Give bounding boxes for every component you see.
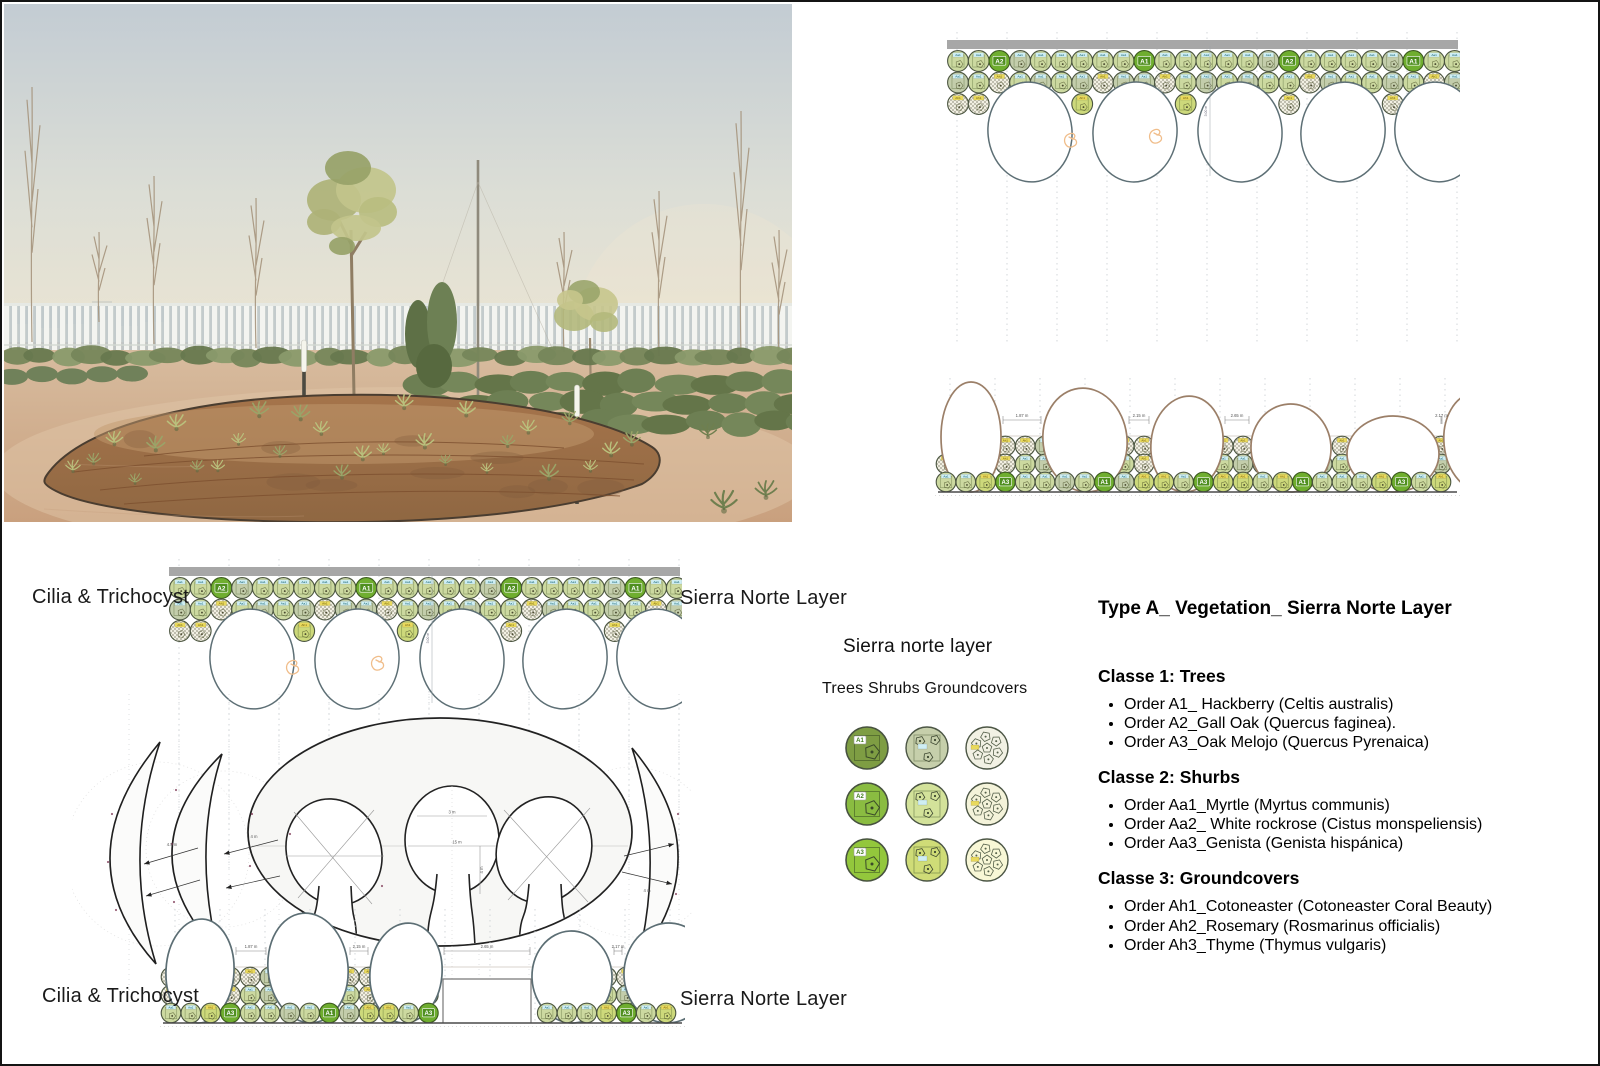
svg-text:Aa1: Aa1	[1260, 474, 1266, 478]
plant-circle: Aa1	[273, 599, 294, 620]
svg-text:Aa1: Aa1	[446, 602, 452, 606]
plant-circle: Aa1	[300, 1003, 320, 1023]
svg-text:Aa1: Aa1	[564, 1005, 570, 1009]
svg-text:Ah1: Ah1	[386, 1005, 392, 1009]
plant-circle: Ah1	[240, 967, 260, 987]
legend-shrub-symbol	[906, 839, 948, 881]
svg-text:2.15 m: 2.15 m	[1133, 413, 1146, 418]
photo-lamp-post	[302, 340, 307, 372]
legend-shrub-symbol	[906, 727, 948, 769]
tree-canopy	[1295, 77, 1391, 186]
plant-circle: Aa1	[956, 472, 976, 492]
plant-circle: Aa1	[418, 599, 439, 620]
plant-circle: Aa1	[557, 1003, 577, 1023]
plant-circle: Aa1	[480, 578, 501, 599]
plant-circle: Ah1	[1213, 472, 1233, 492]
plant-circle: Aa1	[948, 51, 969, 72]
svg-text:Ah1: Ah1	[405, 623, 411, 627]
plant-circle: Aa1	[397, 599, 418, 620]
classe-1-heading: Classe 1: Trees	[1098, 666, 1568, 687]
svg-text:Aa1: Aa1	[1339, 474, 1345, 478]
svg-text:2.65 m: 2.65 m	[481, 944, 494, 949]
svg-text:Aa1: Aa1	[612, 580, 618, 584]
svg-text:Aa1: Aa1	[1369, 75, 1375, 79]
plant-circle: Aa1	[280, 1003, 300, 1023]
svg-text:Aa1: Aa1	[347, 1005, 353, 1009]
svg-text:Aa1: Aa1	[248, 987, 254, 991]
svg-text:Aa1: Aa1	[1245, 75, 1251, 79]
svg-text:Aa1: Aa1	[1224, 75, 1230, 79]
svg-text:Aa1: Aa1	[1121, 75, 1127, 79]
svg-text:Aa1: Aa1	[963, 474, 969, 478]
plant-circle: Aa1	[1015, 472, 1035, 492]
svg-text:Aa1: Aa1	[405, 580, 411, 584]
order-item: Order Aa1_Myrtle (Myrtus communis)	[1124, 797, 1568, 815]
plant-circle: Aa1	[1093, 51, 1114, 72]
plant-circle: Aa1	[1055, 472, 1075, 492]
order-item: Order A2_Gall Oak (Quercus faginea).	[1124, 715, 1568, 733]
svg-text:Aa1: Aa1	[1038, 75, 1044, 79]
plant-circle: Aa1	[1010, 51, 1031, 72]
svg-text:Aa1: Aa1	[674, 580, 680, 584]
plant-circle: Aa1	[190, 578, 211, 599]
svg-text:Ah1: Ah1	[508, 623, 514, 627]
svg-text:Aa1: Aa1	[1183, 53, 1189, 57]
plant-circle: Aa1	[1320, 51, 1341, 72]
svg-text:A2: A2	[995, 58, 1004, 65]
planting-section-bottom-left: Ah1Ah1Ah1Aa1Ah1Ah1Ah1Ah1Ah1Ah1Aa1Aa1Aa1A…	[160, 905, 685, 1035]
svg-text:Ah1: Ah1	[529, 602, 535, 606]
svg-text:Ah1: Ah1	[301, 623, 307, 627]
plant-circle: Aa1	[1072, 72, 1093, 93]
label-sierra-norte-top: Sierra Norte Layer	[680, 587, 847, 610]
svg-text:Ah1: Ah1	[976, 96, 982, 100]
plant-circle: A3	[419, 1003, 439, 1023]
svg-text:Aa1: Aa1	[633, 602, 639, 606]
plant-circle: Aa1	[1362, 51, 1383, 72]
svg-text:Ah1: Ah1	[1141, 474, 1147, 478]
plant-circle: Aa1	[1196, 72, 1217, 93]
svg-text:Ah1: Ah1	[384, 602, 390, 606]
svg-text:Aa1: Aa1	[1339, 456, 1345, 460]
order-item: Order Ah1_Cotoneaster (Cotoneaster Coral…	[1124, 898, 1568, 916]
svg-text:Aa1: Aa1	[1017, 75, 1023, 79]
svg-text:Aa1: Aa1	[976, 53, 982, 57]
svg-text:Aa1: Aa1	[612, 602, 618, 606]
plant-circle: Aa1	[1113, 51, 1134, 72]
plant-circle: A1	[625, 578, 646, 599]
svg-text:4 m: 4 m	[644, 888, 651, 893]
svg-text:A3: A3	[856, 850, 864, 856]
svg-text:A3: A3	[1398, 480, 1406, 486]
svg-text:Ah1: Ah1	[955, 96, 961, 100]
classe-2-list: Order Aa1_Myrtle (Myrtus communis) Order…	[1098, 797, 1568, 853]
plant-circle: Aa1	[636, 1003, 656, 1023]
svg-text:Aa1: Aa1	[1082, 474, 1088, 478]
plant-circle: A1	[320, 1003, 340, 1023]
plant-circle: Aa1	[1237, 51, 1258, 72]
svg-text:Aa1: Aa1	[467, 580, 473, 584]
plant-circle: Ah1	[190, 621, 211, 642]
plant-circle: Aa1	[646, 578, 667, 599]
order-item: Order A3_Oak Melojo (Quercus Pyrenaica)	[1124, 734, 1568, 752]
plant-circle: Ah1	[1233, 436, 1253, 456]
svg-text:Aa1: Aa1	[1320, 474, 1326, 478]
svg-text:Ah1: Ah1	[1240, 438, 1246, 442]
svg-text:Ah1: Ah1	[1240, 474, 1246, 478]
svg-text:Aa1: Aa1	[405, 602, 411, 606]
svg-text:Aa1: Aa1	[584, 1005, 590, 1009]
order-item: Order Ah3_Thyme (Thymus vulgaris)	[1124, 937, 1568, 955]
svg-text:4 m: 4 m	[251, 834, 258, 839]
legend-tree-symbol: A2	[846, 783, 888, 825]
plant-circle: Ah1	[1279, 94, 1300, 115]
svg-text:A1: A1	[856, 738, 864, 744]
svg-text:2.17 m: 2.17 m	[612, 944, 625, 949]
plant-circle: A1	[1095, 472, 1115, 492]
plant-circle: Aa1	[232, 578, 253, 599]
svg-text:Aa1: Aa1	[1204, 75, 1210, 79]
svg-text:Aa1: Aa1	[426, 580, 432, 584]
plant-circle: Ah1	[170, 621, 191, 642]
plant-circle: Aa1	[542, 578, 563, 599]
svg-text:Aa1: Aa1	[1122, 474, 1128, 478]
svg-text:Aa1: Aa1	[1452, 75, 1458, 79]
plant-circle: Aa1	[240, 1003, 260, 1023]
svg-text:Aa1: Aa1	[1204, 53, 1210, 57]
legend-groundcover-symbol	[966, 727, 1008, 769]
svg-text:Aa1: Aa1	[488, 580, 494, 584]
svg-text:Aa1: Aa1	[1023, 456, 1029, 460]
plant-circle: Ah1	[1175, 94, 1196, 115]
legend-groundcover-symbol	[966, 839, 1008, 881]
svg-text:3.00 m: 3.00 m	[1204, 106, 1208, 117]
svg-text:Ah1: Ah1	[1390, 96, 1396, 100]
plant-circle: Ah1	[656, 1003, 676, 1023]
svg-text:Aa1: Aa1	[287, 1005, 293, 1009]
svg-text:Ah1: Ah1	[1100, 75, 1106, 79]
svg-text:Aa1: Aa1	[1079, 75, 1085, 79]
svg-text:Aa1: Aa1	[955, 75, 961, 79]
svg-text:4.5 m: 4.5 m	[167, 842, 178, 847]
svg-text:Aa1: Aa1	[1419, 474, 1425, 478]
svg-text:Ah1: Ah1	[1183, 96, 1189, 100]
plant-circle: A2	[989, 51, 1010, 72]
plant-circle: Ah1	[1372, 472, 1392, 492]
plant-circle: Aa1	[563, 578, 584, 599]
plant-circle: Aa1	[604, 599, 625, 620]
planting-plan-top-right: Aa1Aa1A2Aa1Aa1Aa1Aa1Aa1Aa1A1Aa1Aa1Aa1Aa1…	[945, 26, 1460, 356]
plant-circle: Aa1	[273, 578, 294, 599]
plant-circle: Aa1	[439, 578, 460, 599]
label-sierra-norte-bottom: Sierra Norte Layer	[680, 988, 847, 1011]
plant-circle: Aa1	[1035, 472, 1055, 492]
svg-text:Aa1: Aa1	[343, 602, 349, 606]
svg-text:3 m: 3 m	[449, 810, 456, 815]
legend-subtitle: Trees Shrubs Groundcovers	[822, 680, 1027, 698]
svg-text:Ah1: Ah1	[1286, 96, 1292, 100]
plant-circle: Aa1	[1072, 51, 1093, 72]
svg-text:A1: A1	[1299, 480, 1307, 486]
plant-circle: A2	[211, 578, 232, 599]
planting-bed-crescent	[110, 742, 160, 964]
svg-text:Aa1: Aa1	[1142, 75, 1148, 79]
svg-text:Aa1: Aa1	[177, 580, 183, 584]
plant-circle: Aa1	[1312, 472, 1332, 492]
plant-circle: A3	[996, 472, 1016, 492]
svg-text:A3: A3	[425, 1011, 433, 1017]
order-item: Order A1_ Hackberry (Celtis australis)	[1124, 696, 1568, 714]
svg-text:3.00 m: 3.00 m	[426, 633, 430, 644]
svg-text:Aa1: Aa1	[1452, 53, 1458, 57]
svg-text:Aa1: Aa1	[571, 580, 577, 584]
svg-text:Aa1: Aa1	[976, 75, 982, 79]
svg-text:Aa1: Aa1	[307, 1005, 313, 1009]
plant-circle: Aa1	[315, 578, 336, 599]
plant-circle: Aa1	[459, 578, 480, 599]
svg-text:2.15 m: 2.15 m	[353, 944, 366, 949]
classe-3-list: Order Ah1_Cotoneaster (Cotoneaster Coral…	[1098, 898, 1568, 954]
plant-circle: Aa1	[399, 1003, 419, 1023]
plant-circle: Aa1	[522, 578, 543, 599]
plant-circle: Aa1	[968, 51, 989, 72]
svg-text:Aa1: Aa1	[322, 580, 328, 584]
plant-circle: Ah1	[315, 599, 336, 620]
order-item: Order Ah2_Rosemary (Rosmarinus officiali…	[1124, 918, 1568, 936]
plant-circle: A3	[221, 1003, 241, 1023]
svg-text:Aa1: Aa1	[1162, 53, 1168, 57]
plant-circle: Aa1	[335, 578, 356, 599]
svg-text:Aa1: Aa1	[508, 602, 514, 606]
plant-circle: Aa1	[240, 985, 260, 1005]
legend-tree-symbol: A3	[846, 839, 888, 881]
svg-text:A1: A1	[1409, 58, 1418, 65]
plant-circle: Aa1	[1233, 454, 1253, 474]
plant-circle: Aa1	[1253, 472, 1273, 492]
plant-circle: Aa1	[1075, 472, 1095, 492]
svg-text:Aa1: Aa1	[301, 580, 307, 584]
svg-text:Ah1: Ah1	[1221, 474, 1227, 478]
svg-text:Ah1: Ah1	[1280, 474, 1286, 478]
plant-circle: Ah1	[294, 621, 315, 642]
plant-circle: Aa1	[936, 472, 956, 492]
svg-text:Aa1: Aa1	[1266, 53, 1272, 57]
plant-circle: Aa1	[1217, 51, 1238, 72]
svg-text:Aa1: Aa1	[343, 580, 349, 584]
tree-canopy	[1089, 79, 1181, 186]
plant-circle: Aa1	[537, 1003, 557, 1023]
svg-text:Aa1: Aa1	[1411, 75, 1417, 79]
svg-text:1.87 m: 1.87 m	[245, 944, 258, 949]
plant-circle: Aa1	[1382, 72, 1403, 93]
svg-text:Ah1: Ah1	[1161, 474, 1167, 478]
classe-2-heading: Classe 2: Shurbs	[1098, 767, 1568, 788]
svg-text:Aa1: Aa1	[653, 580, 659, 584]
svg-text:Aa1: Aa1	[248, 1005, 254, 1009]
plant-circle: Ah1	[1233, 472, 1253, 492]
vegetation-classification: Type A_ Vegetation_ Sierra Norte Layer C…	[1098, 598, 1568, 956]
plant-circle: Ah1	[1431, 472, 1451, 492]
svg-text:Aa1: Aa1	[347, 987, 353, 991]
svg-text:Ah1: Ah1	[983, 474, 989, 478]
svg-text:Aa1: Aa1	[239, 602, 245, 606]
svg-text:Aa1: Aa1	[1062, 474, 1068, 478]
plant-circle: Aa1	[377, 578, 398, 599]
plant-circle: Aa1	[294, 599, 315, 620]
svg-text:Aa1: Aa1	[260, 602, 266, 606]
svg-text:A1: A1	[631, 585, 640, 592]
svg-text:Aa1: Aa1	[550, 580, 556, 584]
svg-text:Ah1: Ah1	[248, 969, 254, 973]
plant-circle: Aa1	[1341, 51, 1362, 72]
plant-circle: Aa1	[1015, 454, 1035, 474]
plant-circle: Aa1	[1300, 51, 1321, 72]
legend-shrub-symbol	[906, 783, 948, 825]
plant-circle: Aa1	[260, 1003, 280, 1023]
svg-text:Aa1: Aa1	[446, 580, 452, 584]
plant-circle: A1	[1293, 472, 1313, 492]
tree-canopy	[983, 78, 1077, 186]
plant-circle: Aa1	[1444, 51, 1460, 72]
plant-circle: Aa1	[1352, 472, 1372, 492]
plant-circle: A3	[617, 1003, 637, 1023]
svg-text:Aa1: Aa1	[1017, 53, 1023, 57]
svg-text:Aa1: Aa1	[239, 580, 245, 584]
svg-text:Ah1: Ah1	[219, 602, 225, 606]
plant-circle: A3	[1392, 472, 1412, 492]
label-cilia-trichocyst-top: Cilia & Trichocyst	[32, 586, 189, 609]
svg-text:Aa1: Aa1	[545, 1005, 551, 1009]
svg-text:A1: A1	[326, 1011, 334, 1017]
plant-circle: Ah1	[1093, 72, 1114, 93]
plant-circle: Aa1	[1196, 51, 1217, 72]
svg-text:Aa1: Aa1	[1245, 53, 1251, 57]
svg-text:Ah1: Ah1	[1379, 474, 1385, 478]
svg-text:Aa1: Aa1	[281, 602, 287, 606]
plant-circle: Aa1	[1258, 51, 1279, 72]
plant-circle: Ah1	[597, 1003, 617, 1023]
svg-text:Aa1: Aa1	[281, 580, 287, 584]
svg-text:Aa1: Aa1	[1023, 474, 1029, 478]
plant-circle: Aa1	[577, 1003, 597, 1023]
svg-text:A1: A1	[1101, 480, 1109, 486]
svg-text:Aa1: Aa1	[1224, 53, 1230, 57]
svg-text:A3: A3	[623, 1011, 631, 1017]
svg-text:Aa1: Aa1	[406, 1005, 412, 1009]
plant-circle: Ah1	[379, 1003, 399, 1023]
plant-circle: Aa1	[418, 578, 439, 599]
svg-text:Aa1: Aa1	[1121, 53, 1127, 57]
svg-text:Aa1: Aa1	[1100, 53, 1106, 57]
svg-text:Aa1: Aa1	[591, 602, 597, 606]
svg-text:15 m: 15 m	[452, 840, 462, 845]
plant-circle: Aa1	[1174, 472, 1194, 492]
svg-text:Aa1: Aa1	[1286, 75, 1292, 79]
svg-text:A2: A2	[217, 585, 226, 592]
plant-circle: Aa1	[968, 72, 989, 93]
svg-text:Aa1: Aa1	[1431, 53, 1437, 57]
svg-text:Aa1: Aa1	[1079, 53, 1085, 57]
presentation-board: Aa1Aa1A2Aa1Aa1Aa1Aa1Aa1Aa1A1Aa1Aa1Aa1Aa1…	[0, 0, 1600, 1066]
plant-circle: Aa1	[1424, 51, 1445, 72]
legend-groundcover-symbol	[966, 783, 1008, 825]
plant-circle: Ah1	[948, 94, 969, 115]
legend-title: Sierra norte layer	[843, 636, 992, 658]
photo-fence	[4, 303, 792, 350]
plant-circle: Aa1	[1279, 72, 1300, 93]
svg-text:Aa1: Aa1	[1349, 53, 1355, 57]
svg-text:Ah1: Ah1	[198, 623, 204, 627]
svg-text:Aa1: Aa1	[1240, 456, 1246, 460]
plant-circle: Aa1	[1411, 472, 1431, 492]
svg-text:Aa1: Aa1	[1038, 53, 1044, 57]
svg-text:Aa1: Aa1	[1359, 474, 1365, 478]
svg-text:A2: A2	[856, 794, 864, 800]
svg-text:Aa1: Aa1	[571, 602, 577, 606]
plant-circle: Ah1	[1154, 472, 1174, 492]
plant-circle: Aa1	[1332, 472, 1352, 492]
svg-text:Ah1: Ah1	[612, 623, 618, 627]
plant-circle: A2	[1279, 51, 1300, 72]
plant-circle: Ah1	[501, 621, 522, 642]
svg-text:2.65 m: 2.65 m	[1231, 413, 1244, 418]
svg-text:Ah1: Ah1	[1003, 438, 1009, 442]
svg-text:Ah1: Ah1	[653, 602, 659, 606]
plant-circle: Aa1	[948, 72, 969, 93]
svg-text:2.17 m: 2.17 m	[1435, 413, 1448, 418]
plant-circle: Ah1	[201, 1003, 221, 1023]
order-item: Order Aa3_Genista (Genista hispánica)	[1124, 835, 1568, 853]
plant-circle: Ah1	[1072, 94, 1093, 115]
planting-section-top-right: Ah1Ah1Aa1Ah1Ah1Ah1Ah1Ah1Ah1Ah1Ah1Aa1Aa1A…	[935, 374, 1460, 504]
svg-text:Ah1: Ah1	[997, 75, 1003, 79]
legend-tree-symbol: A1	[846, 727, 888, 769]
svg-text:A3: A3	[1200, 480, 1208, 486]
svg-text:Aa1: Aa1	[364, 602, 370, 606]
plant-circle: A3	[1194, 472, 1214, 492]
svg-text:Aa1: Aa1	[674, 602, 680, 606]
plant-circle: Aa1	[1175, 51, 1196, 72]
plant-circle: Aa1	[1114, 472, 1134, 492]
plant-circle: Aa1	[501, 599, 522, 620]
svg-text:Aa1: Aa1	[1266, 75, 1272, 79]
svg-text:Ah1: Ah1	[177, 623, 183, 627]
svg-text:Aa1: Aa1	[1369, 53, 1375, 57]
plant-circle: A2	[501, 578, 522, 599]
svg-text:Aa1: Aa1	[1183, 75, 1189, 79]
svg-text:A1: A1	[362, 585, 371, 592]
label-cilia-trichocyst-bottom: Cilia & Trichocyst	[42, 985, 199, 1008]
svg-text:4 m: 4 m	[479, 866, 484, 873]
svg-text:Aa1: Aa1	[267, 1005, 273, 1009]
svg-text:Aa1: Aa1	[198, 580, 204, 584]
plant-circle: Ah1	[1300, 72, 1321, 93]
svg-text:Aa1: Aa1	[1059, 53, 1065, 57]
svg-text:1.87 m: 1.87 m	[1016, 413, 1029, 418]
svg-text:Aa1: Aa1	[943, 474, 949, 478]
plant-circle: Ah1	[976, 472, 996, 492]
svg-text:Ah1: Ah1	[1003, 456, 1009, 460]
svg-text:Aa1: Aa1	[198, 602, 204, 606]
svg-text:Aa1: Aa1	[426, 602, 432, 606]
plant-circle: A1	[356, 578, 377, 599]
svg-text:A2: A2	[507, 585, 516, 592]
svg-text:Aa1: Aa1	[1349, 75, 1355, 79]
svg-text:Ah1: Ah1	[1141, 438, 1147, 442]
svg-text:A3: A3	[1002, 480, 1010, 486]
svg-text:Ah1: Ah1	[366, 1005, 372, 1009]
svg-text:Ah1: Ah1	[1431, 75, 1437, 79]
